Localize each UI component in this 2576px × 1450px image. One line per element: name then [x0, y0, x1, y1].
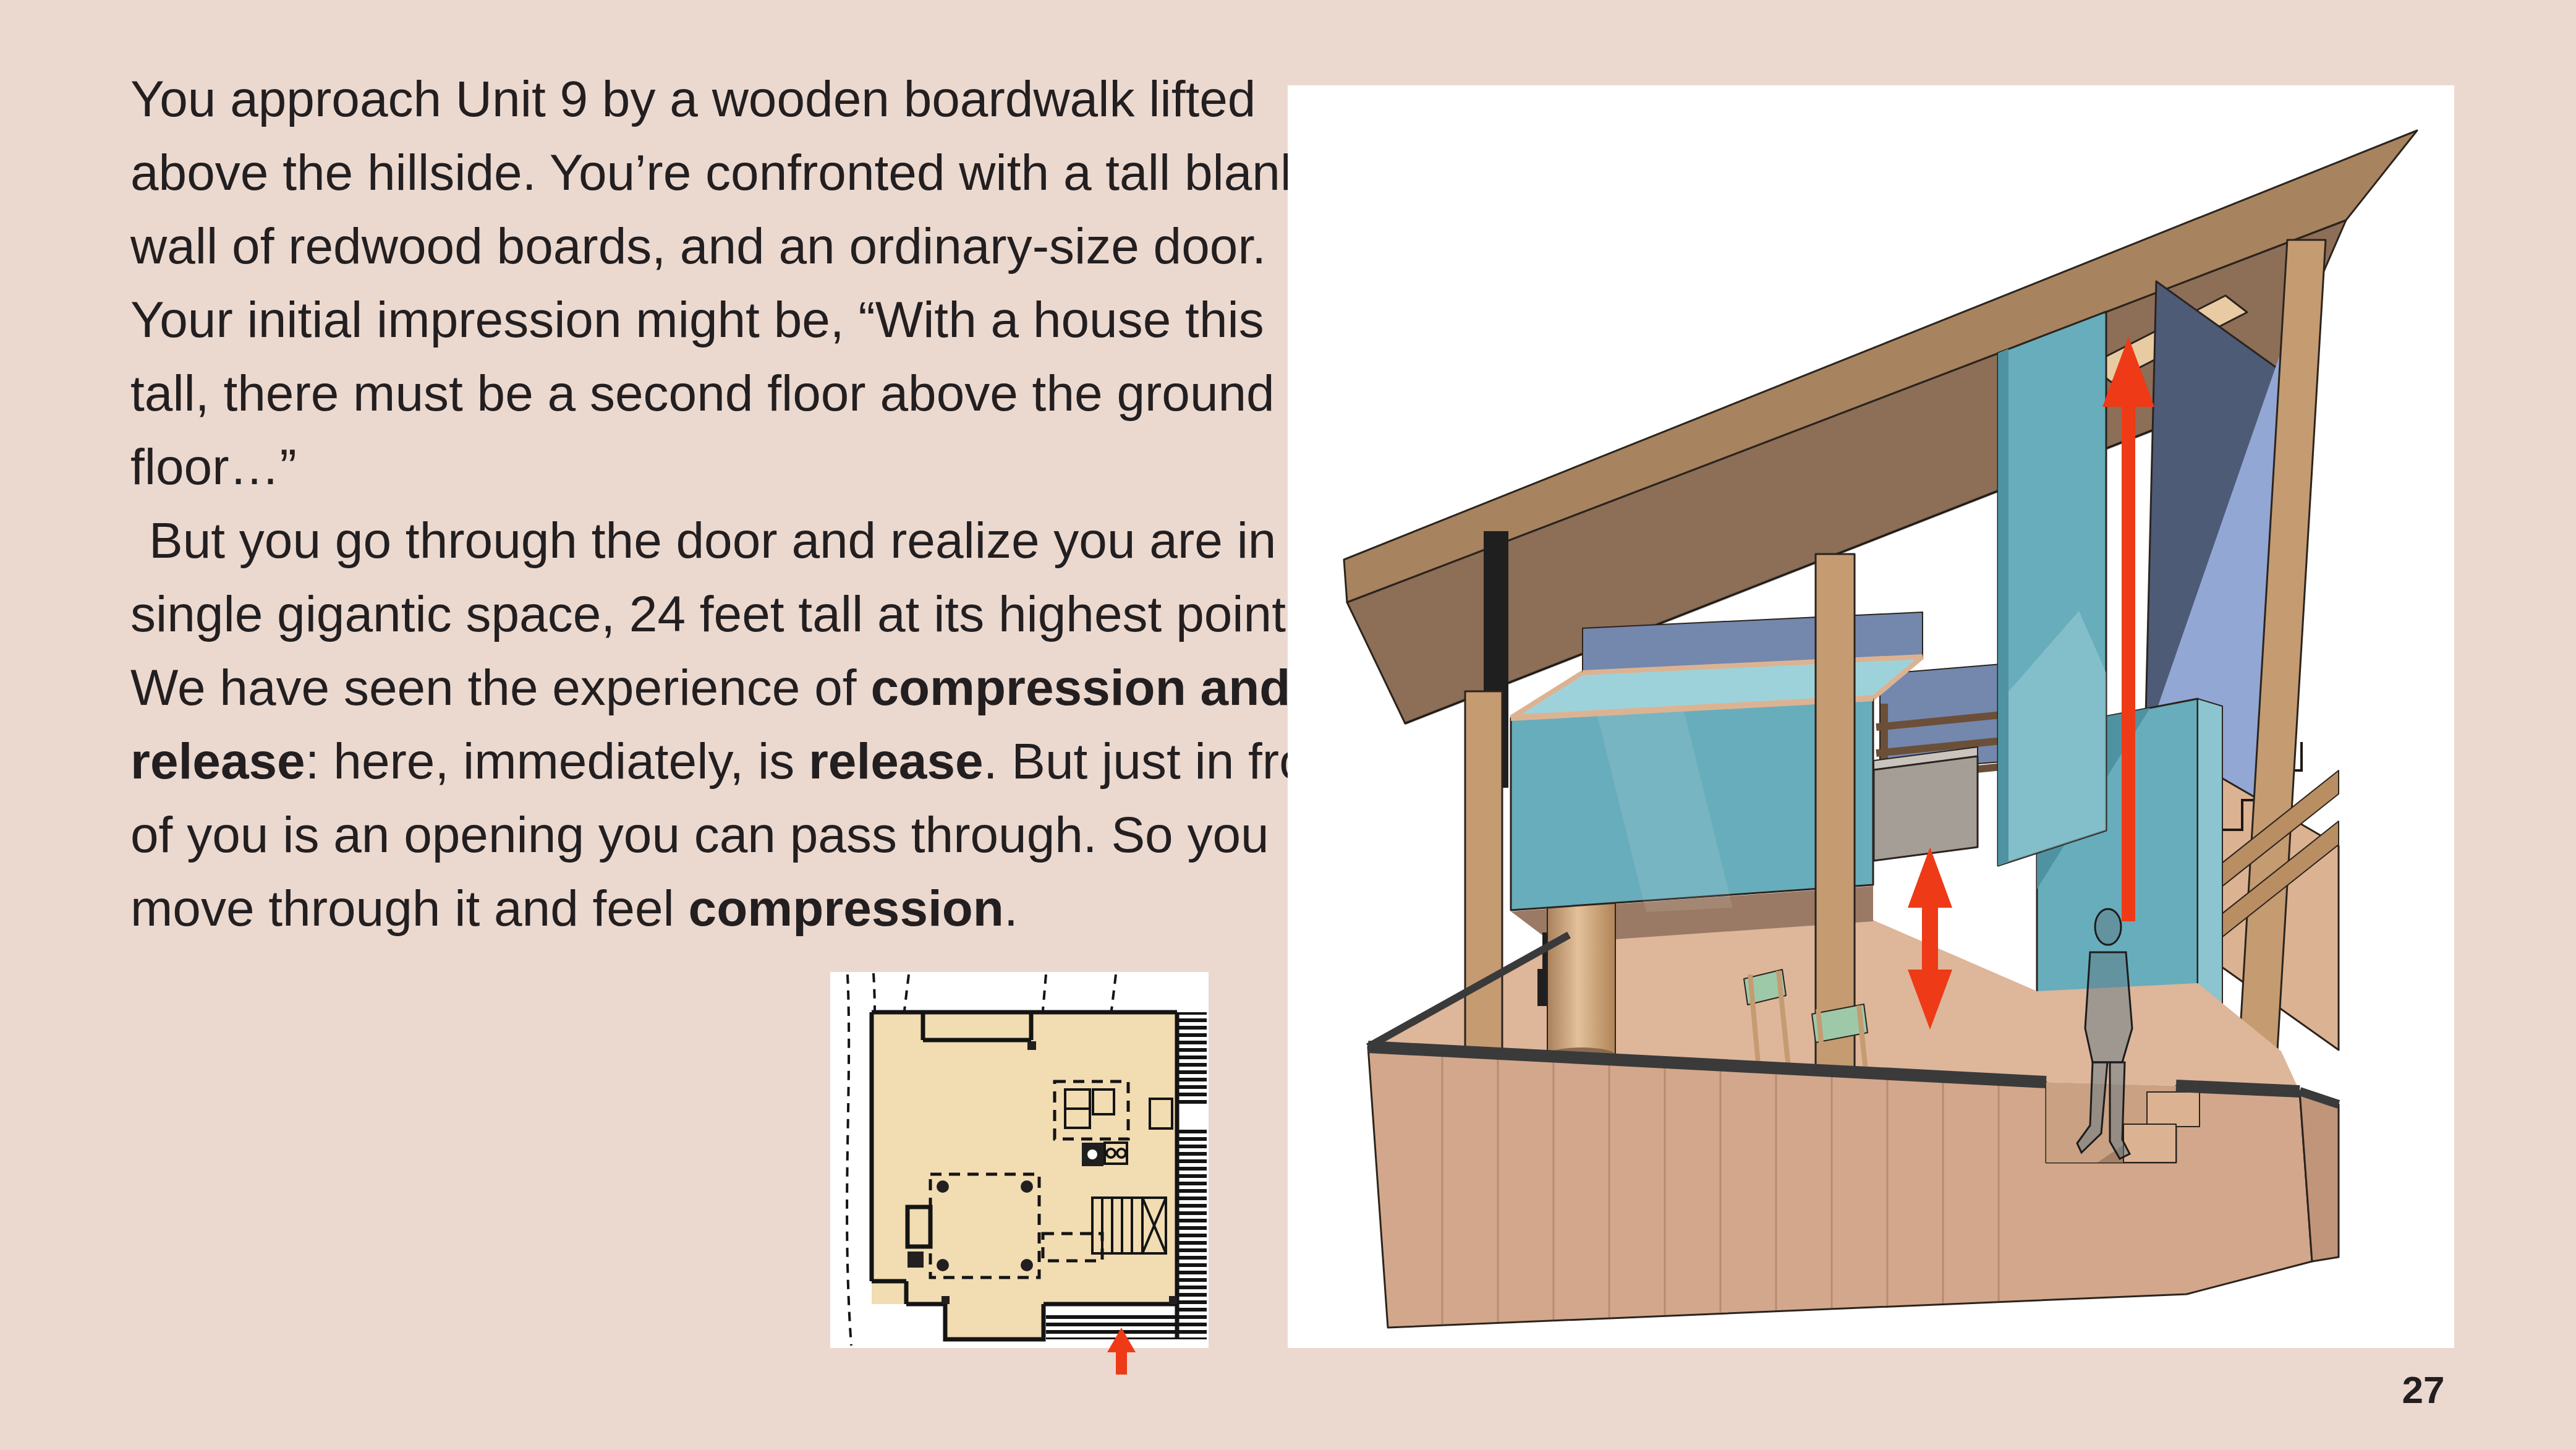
plain-text: wall of redwood boards, and an ordinary-…: [130, 218, 1266, 274]
post-mid: [1816, 554, 1855, 1071]
model-3d-figure: [1288, 85, 2454, 1348]
text-line: We have seen the experience of compressi…: [130, 650, 1354, 724]
text-line: move through it and feel compression.: [130, 871, 1354, 945]
plain-text: .: [1004, 880, 1018, 936]
loft-volume: [1511, 657, 1923, 912]
plain-text: tall, there must be a second floor above…: [130, 365, 1275, 421]
plain-text: Your initial impression might be, “With …: [130, 291, 1264, 348]
text-line: wall of redwood boards, and an ordinary-…: [130, 209, 1354, 283]
text-line: But you go through the door and realize …: [130, 503, 1354, 577]
plain-text: single gigantic space, 24 feet tall at i…: [130, 586, 1300, 642]
text-line: floor…”: [130, 430, 1354, 503]
text-line: single gigantic space, 24 feet tall at i…: [130, 577, 1354, 650]
plain-text: You approach Unit 9 by a wooden boardwal…: [130, 70, 1256, 127]
emphasis-text: compression: [689, 880, 1004, 936]
emphasis-text: release: [130, 733, 305, 789]
text-line: tall, there must be a second floor above…: [130, 356, 1354, 430]
plain-text: We have seen the experience of: [130, 659, 870, 715]
post-left: [1465, 691, 1502, 1053]
floor-plan-figure: [830, 972, 1209, 1348]
text-line: Your initial impression might be, “With …: [130, 283, 1354, 356]
gray-panel: [1874, 747, 1978, 861]
plain-text: floor…”: [130, 438, 297, 495]
text-line: above the hillside. You’re confronted wi…: [130, 135, 1354, 209]
model-3d-drawing: [1288, 85, 2454, 1348]
emphasis-text: release: [809, 733, 984, 789]
emphasis-text: compression and: [870, 659, 1290, 715]
teal-panel-upper: [1998, 312, 2106, 866]
text-line: of you is an opening you can pass throug…: [130, 798, 1354, 871]
body-text: You approach Unit 9 by a wooden boardwal…: [130, 62, 1354, 945]
text-line: You approach Unit 9 by a wooden boardwal…: [130, 62, 1354, 135]
floor-plan-drawing: [830, 972, 1209, 1383]
plain-text: But you go through the door and realize …: [149, 512, 1319, 568]
plain-text: : here, immediately, is: [305, 733, 809, 789]
page-number: 27: [2392, 1368, 2454, 1412]
book-page: You approach Unit 9 by a wooden boardwal…: [0, 0, 2576, 1450]
plain-text: move through it and feel: [130, 880, 689, 936]
plain-text: of you is an opening you can pass throug…: [130, 806, 1269, 863]
text-line: release: here, immediately, is release. …: [130, 724, 1354, 798]
round-column: [1547, 903, 1615, 1062]
plain-text: above the hillside. You’re confronted wi…: [130, 144, 1306, 200]
